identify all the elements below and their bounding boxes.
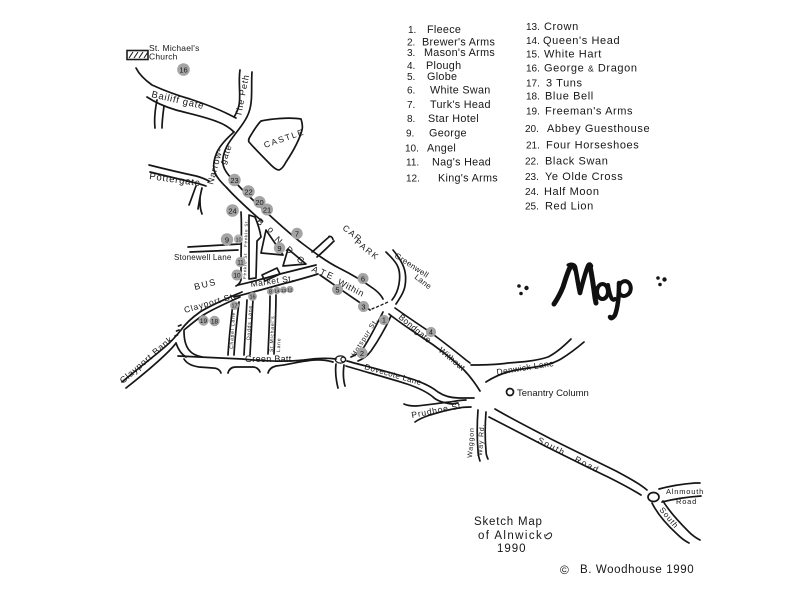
svg-text:9: 9 — [225, 235, 229, 244]
svg-text:Four Horseshoes: Four Horseshoes — [546, 140, 639, 152]
svg-text:3 Tuns: 3 Tuns — [546, 78, 583, 90]
svg-text:White Swan: White Swan — [430, 85, 491, 97]
svg-text:1990: 1990 — [497, 543, 527, 555]
svg-text:2: 2 — [360, 349, 364, 358]
svg-text:Fleece: Fleece — [427, 24, 461, 36]
svg-text:20.: 20. — [525, 124, 539, 135]
svg-text:25.: 25. — [525, 202, 539, 213]
svg-text:Star Hotel: Star Hotel — [428, 113, 479, 125]
svg-text:23.: 23. — [525, 172, 539, 183]
svg-text:B. Woodhouse 1990: B. Woodhouse 1990 — [580, 564, 694, 576]
svg-text:13: 13 — [281, 288, 287, 293]
svg-text:Half Moon: Half Moon — [544, 186, 600, 198]
svg-text:22.: 22. — [525, 157, 539, 168]
svg-text:George & Dragon: George & Dragon — [544, 63, 638, 75]
svg-text:8: 8 — [269, 290, 272, 296]
svg-text:Freeman's Arms: Freeman's Arms — [545, 106, 633, 118]
svg-text:Crown: Crown — [544, 21, 579, 33]
svg-text:10: 10 — [235, 237, 241, 243]
svg-text:Lane: Lane — [276, 338, 282, 353]
svg-text:George: George — [429, 128, 467, 140]
svg-text:5: 5 — [335, 285, 339, 294]
svg-text:Abbey Guesthouse: Abbey Guesthouse — [547, 123, 650, 135]
svg-text:21: 21 — [263, 205, 271, 214]
svg-text:23: 23 — [230, 176, 238, 185]
svg-text:7: 7 — [295, 229, 299, 238]
svg-text:21.: 21. — [526, 141, 540, 152]
svg-text:19: 19 — [200, 318, 208, 325]
svg-text:Globe: Globe — [427, 71, 457, 83]
svg-text:7.: 7. — [407, 100, 415, 111]
svg-text:St.Michael's: St.Michael's — [269, 315, 276, 352]
svg-text:Angel: Angel — [427, 143, 456, 155]
svg-text:White Hart: White Hart — [544, 49, 602, 61]
svg-text:©: © — [560, 563, 569, 577]
svg-text:6.: 6. — [407, 86, 415, 97]
svg-text:3.: 3. — [407, 48, 415, 59]
svg-text:Nag's Head: Nag's Head — [432, 157, 491, 169]
svg-text:Turk's Head: Turk's Head — [430, 99, 491, 111]
svg-text:9.: 9. — [406, 129, 414, 140]
svg-text:9: 9 — [277, 244, 281, 253]
svg-text:4: 4 — [429, 330, 433, 337]
svg-text:Church: Church — [149, 52, 178, 62]
svg-text:16: 16 — [179, 65, 187, 74]
svg-text:22: 22 — [244, 187, 252, 196]
svg-text:Sketch Map: Sketch Map — [474, 516, 543, 528]
svg-text:5.: 5. — [407, 72, 415, 83]
svg-text:Mason's Arms: Mason's Arms — [424, 47, 495, 59]
svg-text:10.: 10. — [405, 144, 419, 155]
svg-text:Black Swan: Black Swan — [545, 156, 608, 168]
svg-text:16: 16 — [249, 295, 255, 301]
svg-text:13.: 13. — [526, 22, 540, 33]
svg-text:Ye Olde Cross: Ye Olde Cross — [545, 171, 623, 183]
svg-text:12: 12 — [287, 288, 293, 293]
svg-text:15.: 15. — [526, 50, 540, 61]
svg-text:Blue Bell: Blue Bell — [545, 91, 594, 103]
svg-text:King's Arms: King's Arms — [438, 173, 498, 185]
svg-text:17: 17 — [231, 304, 237, 310]
svg-text:18.: 18. — [526, 92, 540, 103]
svg-text:1.: 1. — [408, 25, 416, 36]
svg-text:Stonewell Lane: Stonewell Lane — [174, 253, 232, 262]
svg-text:12.: 12. — [406, 174, 420, 185]
svg-text:2.: 2. — [407, 38, 415, 49]
svg-text:11: 11 — [237, 260, 244, 266]
svg-text:10: 10 — [233, 273, 241, 280]
svg-text:of Alnwick: of Alnwick — [478, 530, 543, 542]
svg-text:3: 3 — [361, 302, 365, 311]
svg-text:24: 24 — [228, 206, 236, 215]
svg-text:17.: 17. — [526, 79, 540, 90]
svg-text:Queen's Head: Queen's Head — [543, 35, 620, 47]
svg-text:Tenantry Column: Tenantry Column — [517, 388, 589, 399]
svg-text:Red Lion: Red Lion — [545, 201, 594, 213]
svg-text:4.: 4. — [407, 61, 415, 72]
svg-text:14: 14 — [274, 289, 280, 294]
svg-text:Alnmouth: Alnmouth — [666, 487, 704, 496]
svg-text:18: 18 — [211, 319, 219, 326]
svg-text:Road: Road — [676, 497, 697, 506]
svg-text:Fenkle St.: Fenkle St. — [243, 219, 249, 247]
svg-text:Green Batt: Green Batt — [245, 354, 292, 364]
svg-text:19.: 19. — [526, 107, 540, 118]
svg-text:24.: 24. — [525, 187, 539, 198]
svg-text:6: 6 — [361, 274, 365, 283]
svg-text:14.: 14. — [526, 36, 540, 47]
svg-text:11.: 11. — [406, 158, 419, 169]
svg-text:1: 1 — [382, 318, 386, 325]
svg-text:16.: 16. — [526, 64, 540, 75]
svg-text:8.: 8. — [407, 114, 415, 125]
